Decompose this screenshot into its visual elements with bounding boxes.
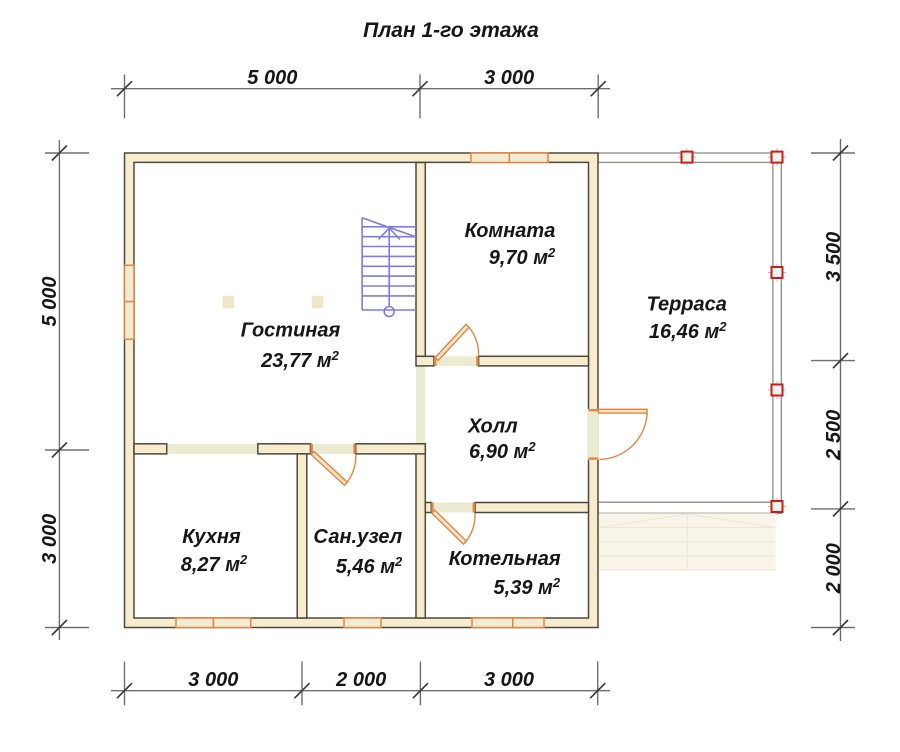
svg-text:16,46 м2: 16,46 м2 bbox=[649, 319, 727, 343]
svg-text:6,90 м2: 6,90 м2 bbox=[469, 439, 536, 463]
svg-text:Котельная: Котельная bbox=[449, 548, 561, 570]
svg-text:3 500: 3 500 bbox=[823, 232, 845, 282]
svg-text:План 1-го этажа: План 1-го этажа bbox=[363, 19, 539, 42]
svg-text:Холл: Холл bbox=[467, 415, 518, 437]
svg-text:3 000: 3 000 bbox=[484, 67, 534, 89]
svg-text:23,77 м2: 23,77 м2 bbox=[260, 348, 339, 372]
svg-text:Кухня: Кухня bbox=[182, 526, 241, 548]
svg-text:5,39 м2: 5,39 м2 bbox=[494, 575, 561, 599]
svg-text:2 500: 2 500 bbox=[823, 410, 845, 461]
svg-text:5 000: 5 000 bbox=[247, 67, 297, 89]
svg-text:2 000: 2 000 bbox=[335, 669, 386, 691]
svg-text:3 000: 3 000 bbox=[39, 514, 61, 564]
svg-text:Сан.узел: Сан.узел bbox=[313, 526, 402, 548]
svg-text:9,70 м2: 9,70 м2 bbox=[489, 245, 556, 269]
svg-text:8,27 м2: 8,27 м2 bbox=[181, 552, 248, 576]
svg-text:5 000: 5 000 bbox=[39, 276, 61, 326]
svg-text:2 000: 2 000 bbox=[823, 543, 845, 594]
svg-text:3 000: 3 000 bbox=[484, 669, 534, 691]
svg-text:Комната: Комната bbox=[465, 220, 556, 242]
svg-text:5,46 м2: 5,46 м2 bbox=[336, 554, 403, 578]
svg-text:Терраса: Терраса bbox=[647, 294, 727, 316]
svg-text:3 000: 3 000 bbox=[188, 669, 238, 691]
svg-text:Гостиная: Гостиная bbox=[241, 320, 341, 342]
